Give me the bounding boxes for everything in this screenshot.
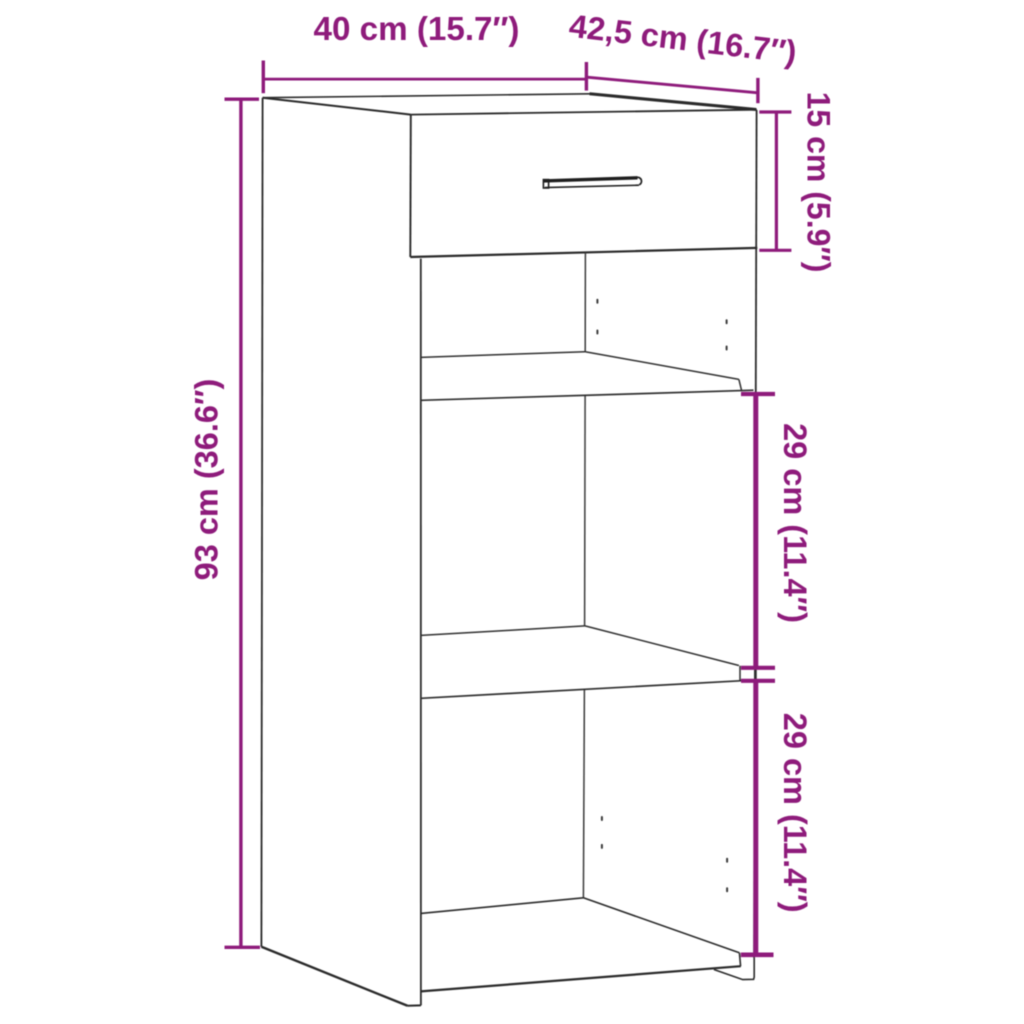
svg-text:42,5 cm (16.7″): 42,5 cm (16.7″): [567, 8, 798, 71]
svg-text:40 cm (15.7″): 40 cm (15.7″): [314, 11, 520, 48]
svg-text:29 cm (11.4″): 29 cm (11.4″): [777, 423, 813, 623]
svg-text:15 cm (5.9″): 15 cm (5.9″): [800, 92, 836, 273]
svg-text:29 cm (11.4″): 29 cm (11.4″): [777, 713, 813, 913]
svg-text:93 cm (36.6″): 93 cm (36.6″): [189, 379, 225, 581]
